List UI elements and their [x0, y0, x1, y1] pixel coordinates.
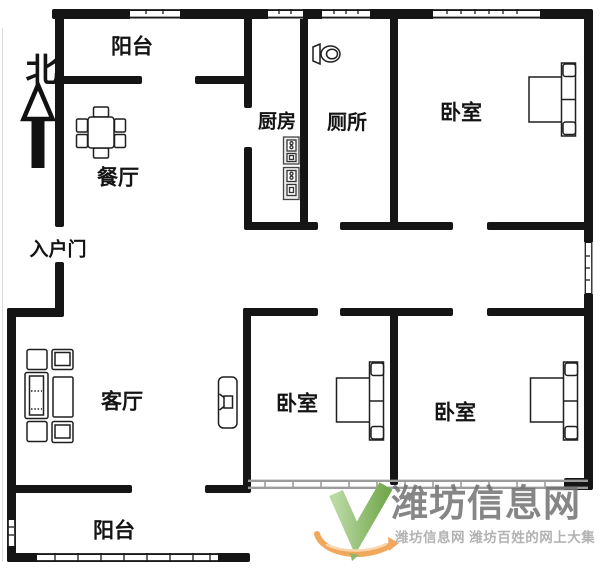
watermark-subtitle: 潍坊信息网 潍坊百姓的网上大集 — [395, 531, 595, 546]
bed-icon — [337, 362, 384, 440]
wall — [487, 308, 590, 316]
sofa-set-icon — [25, 350, 73, 443]
bed-icon — [531, 362, 578, 440]
window — [37, 554, 218, 562]
room-label-balcony-bottom: 阳台 — [93, 521, 135, 542]
window — [433, 10, 540, 19]
wall — [584, 293, 593, 490]
walls — [7, 9, 593, 562]
window — [130, 10, 180, 19]
room-label-toilet: 厕所 — [327, 113, 367, 133]
wall — [55, 9, 64, 227]
wall — [243, 308, 318, 316]
north-label: 北 — [26, 54, 59, 87]
wall — [340, 222, 453, 230]
wall — [244, 9, 252, 108]
wall — [300, 9, 308, 228]
north-arrow-icon — [24, 85, 53, 168]
armchair-icon — [52, 422, 73, 443]
room-label-bedroom-bottom-right: 卧室 — [434, 403, 476, 424]
window — [268, 10, 303, 19]
window — [8, 520, 16, 546]
tv-icon — [219, 377, 238, 428]
wall — [390, 308, 398, 485]
toilet-icon — [313, 44, 340, 64]
wall — [244, 147, 252, 228]
wall — [195, 76, 252, 84]
room-label-dining: 餐厅 — [97, 168, 139, 189]
watermark-title: 潍坊信息网 — [391, 484, 581, 525]
room-label-bedroom-top-right: 卧室 — [440, 103, 482, 124]
dining-table-icon — [77, 107, 126, 158]
wall — [584, 9, 593, 243]
room-label-balcony-top: 阳台 — [111, 37, 153, 58]
side-table-icon — [27, 350, 47, 370]
bed-icon — [529, 63, 576, 136]
window — [322, 10, 370, 19]
armchair-icon — [52, 350, 73, 370]
room-label-bedroom-bottom-middle: 卧室 — [276, 394, 318, 415]
side-table-icon — [27, 422, 47, 442]
window — [585, 243, 593, 293]
watermark-logo-icon — [317, 486, 399, 561]
entry-door-label: 入户门 — [29, 241, 86, 260]
floorplan-image: 北 阳台 餐厅 厨房 厕所 卧室 入户门 客厅 卧室 卧室 阳台 潍坊信息网 潍… — [0, 0, 600, 568]
room-label-kitchen: 厨房 — [258, 113, 296, 132]
sofa-icon — [25, 373, 48, 419]
wall — [390, 9, 398, 228]
room-label-living: 客厅 — [101, 392, 143, 413]
wall — [205, 485, 251, 493]
wall — [243, 308, 251, 490]
wall — [12, 485, 132, 493]
wall — [487, 222, 590, 230]
wall — [244, 222, 318, 230]
wall — [57, 76, 142, 84]
coffee-table-icon — [53, 377, 73, 417]
stove-icon — [284, 137, 300, 200]
